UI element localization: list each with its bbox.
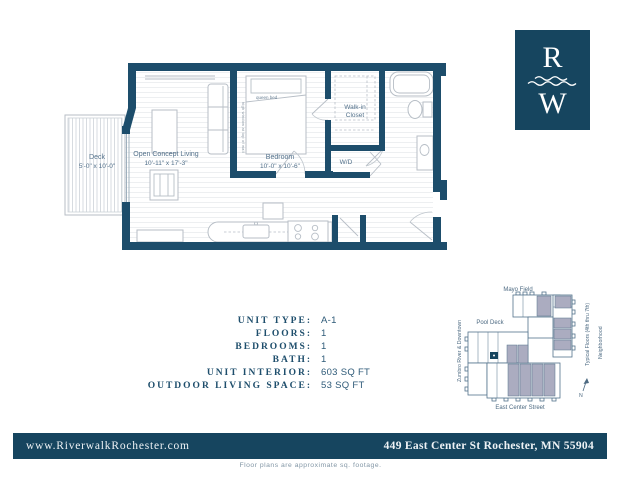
living-dims: 10'-11" x 17'-3" — [144, 160, 188, 167]
detail-row-unit-interior: UNIT INTERIOR: 603 SQ FT — [78, 367, 370, 380]
building-footprint — [465, 292, 575, 401]
detail-value: A-1 — [321, 315, 337, 326]
detail-value: 603 SQ FT — [321, 367, 370, 378]
queen-bed-label: queen bed — [256, 95, 278, 100]
map-label-mayo-field: Mayo Field — [503, 287, 532, 293]
window-note: high window at top of wall — [241, 102, 246, 153]
detail-label: UNIT TYPE: — [78, 316, 312, 326]
map-label-zumbro-river: Zumbro River & Downtown — [457, 320, 463, 382]
street-address: 449 East Center St Rochester, MN 55904 — [384, 440, 594, 452]
detail-row-unit-type: UNIT TYPE: A-1 — [78, 315, 370, 328]
bedroom-label: Bedroom — [266, 154, 295, 161]
closet-label-line1: Walk-in — [344, 104, 366, 111]
site-location-map: Mayo Field Pool Deck Zumbro River & Down… — [452, 282, 620, 420]
detail-value: 1 — [321, 354, 327, 365]
detail-label: UNIT INTERIOR: — [78, 368, 312, 378]
floor-plan: Deck 5'-0" x 10'-0" Open Concept Living … — [58, 52, 458, 252]
deck-dims: 5'-0" x 10'-0" — [79, 163, 116, 170]
map-label-neighborhood: Neighborhood — [598, 326, 604, 359]
logo-letter-r: R — [542, 44, 562, 71]
living-label: Open Concept Living — [133, 151, 198, 158]
detail-label: BATH: — [78, 355, 312, 365]
website-url: www.RiverwalkRochester.com — [26, 440, 190, 452]
logo-waves-icon — [526, 74, 580, 88]
logo-letter-w: W — [538, 90, 566, 117]
compass-icon — [583, 378, 589, 391]
map-label-typical-floors: Typical Floors (4th thru 7th) — [585, 303, 591, 366]
detail-value: 1 — [321, 328, 327, 339]
unit-location-marker — [490, 352, 498, 359]
wd-label: W/D — [340, 159, 353, 166]
riverwalk-logo: R W — [515, 30, 590, 130]
map-label-east-center-street: East Center Street — [495, 405, 545, 411]
detail-value: 1 — [321, 341, 327, 352]
deck-label: Deck — [89, 154, 105, 161]
map-compass-n: N — [579, 393, 583, 399]
disclaimer-text: Floor plans are approximate sq. footage. — [0, 462, 621, 469]
bedroom-dims: 10'-0" x 10'-6" — [260, 163, 301, 170]
footer-bar: www.RiverwalkRochester.com 449 East Cent… — [13, 433, 607, 459]
closet-label-line2: Closet — [346, 112, 365, 119]
flyer-page: Deck 5'-0" x 10'-0" Open Concept Living … — [0, 0, 621, 480]
detail-label: BEDROOMS: — [78, 342, 312, 352]
detail-label: FLOORS: — [78, 329, 312, 339]
detail-row-bath: BATH: 1 — [78, 354, 370, 367]
detail-row-outdoor-space: OUTDOOR LIVING SPACE: 53 SQ FT — [78, 380, 370, 393]
detail-row-bedrooms: BEDROOMS: 1 — [78, 341, 370, 354]
detail-row-floors: FLOORS: 1 — [78, 328, 370, 341]
map-label-pool-deck: Pool Deck — [476, 320, 504, 326]
detail-value: 53 SQ FT — [321, 380, 365, 391]
unit-details: UNIT TYPE: A-1 FLOORS: 1 BEDROOMS: 1 BAT… — [78, 315, 370, 393]
detail-label: OUTDOOR LIVING SPACE: — [78, 381, 312, 391]
